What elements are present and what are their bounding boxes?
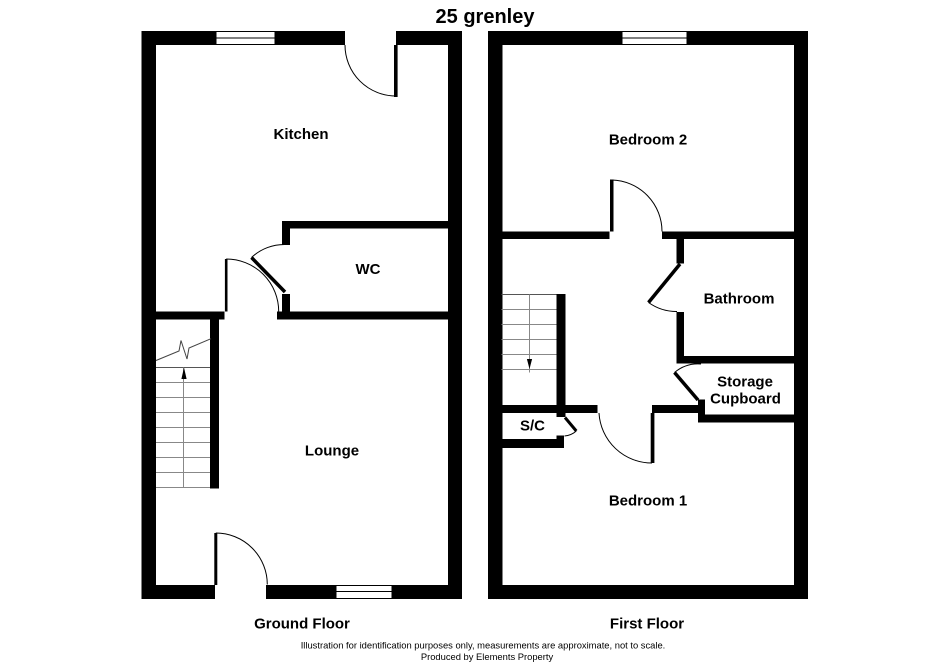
svg-text:Bathroom: Bathroom	[704, 291, 775, 308]
svg-text:25 grenley: 25 grenley	[436, 6, 536, 28]
svg-text:Produced by Elements Property: Produced by Elements Property	[421, 651, 554, 662]
svg-text:Illustration for identificatio: Illustration for identification purposes…	[301, 640, 666, 651]
svg-text:S/C: S/C	[520, 418, 545, 435]
svg-text:Kitchen: Kitchen	[273, 126, 328, 143]
svg-text:Bedroom 2: Bedroom 2	[609, 132, 687, 149]
svg-text:First Floor: First Floor	[610, 616, 684, 633]
svg-text:Cupboard: Cupboard	[710, 391, 781, 408]
svg-text:Ground Floor: Ground Floor	[254, 616, 350, 633]
svg-text:Lounge: Lounge	[305, 443, 359, 460]
svg-text:WC: WC	[356, 261, 381, 278]
svg-text:Storage: Storage	[717, 374, 773, 391]
svg-text:Bedroom 1: Bedroom 1	[609, 493, 687, 510]
